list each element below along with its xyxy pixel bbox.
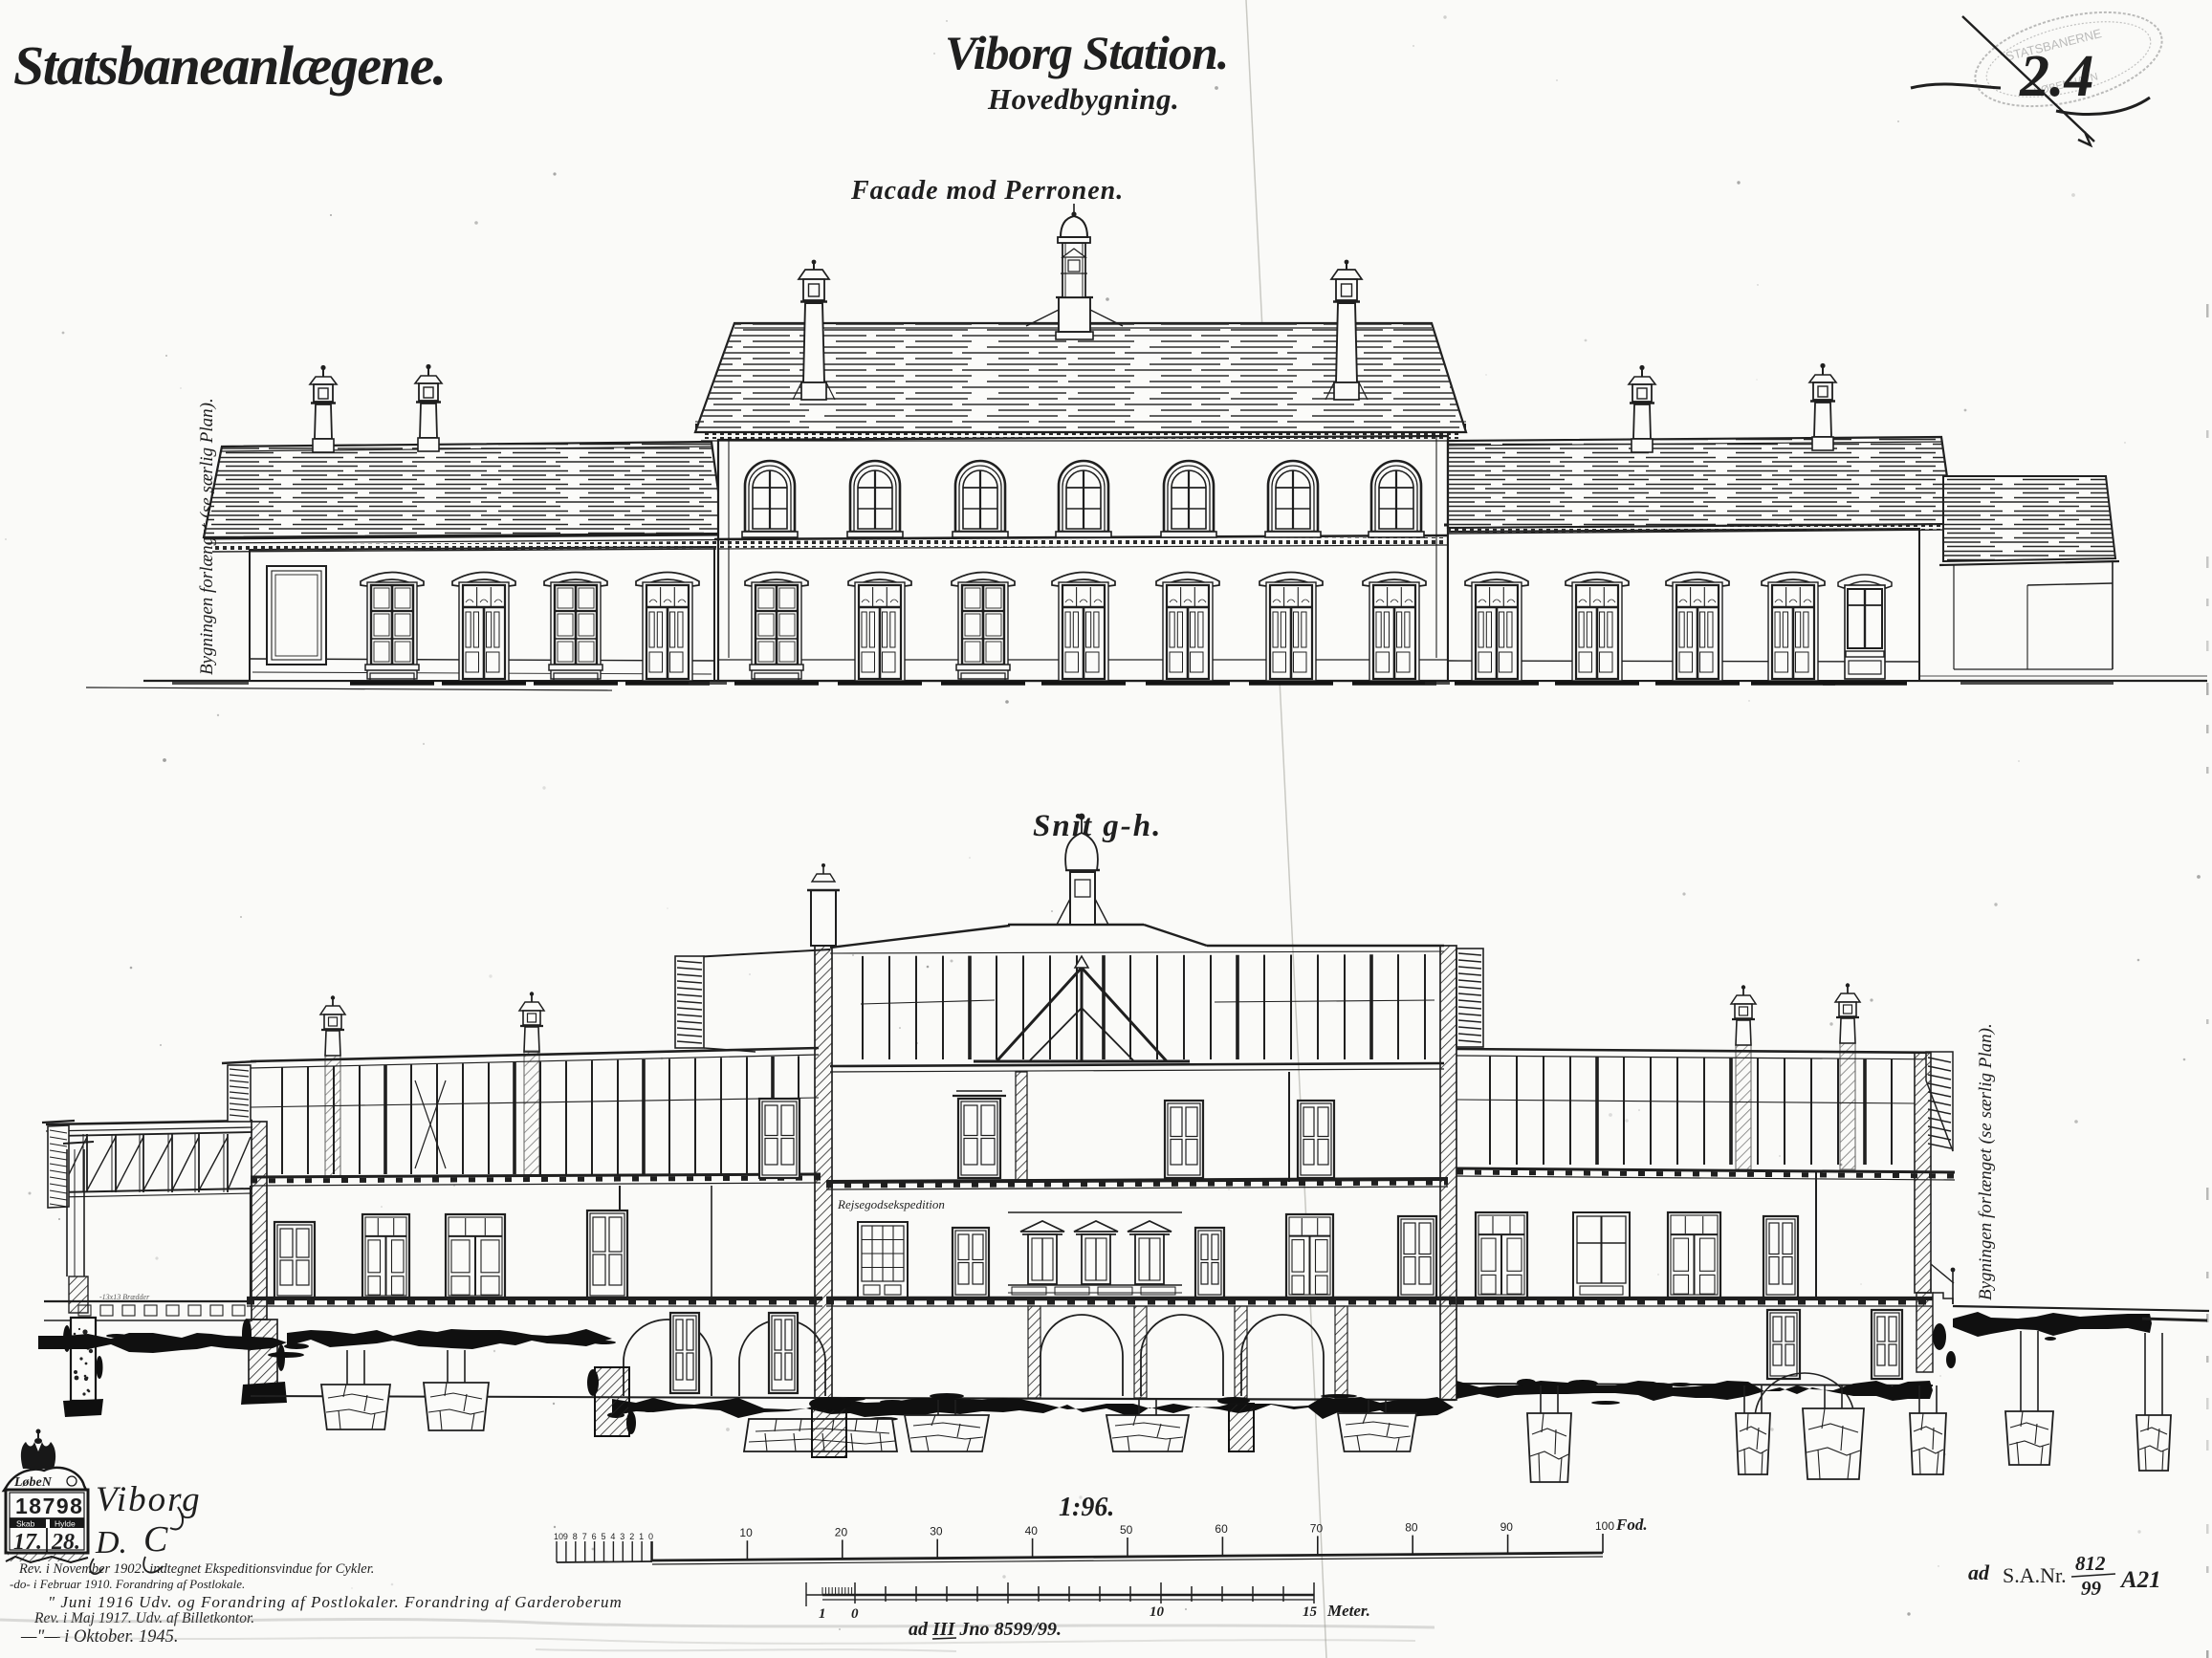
svg-text:Fod.: Fod.	[1615, 1516, 1648, 1534]
svg-text:Skab: Skab	[16, 1519, 35, 1529]
svg-text:812: 812	[2075, 1552, 2106, 1575]
svg-text:60: 60	[1215, 1522, 1228, 1536]
svg-text:10: 10	[739, 1526, 753, 1539]
svg-text:1:96.: 1:96.	[1059, 1493, 1114, 1522]
svg-text:1: 1	[819, 1606, 826, 1622]
svg-text:90: 90	[1500, 1520, 1514, 1534]
svg-text:8: 8	[573, 1532, 578, 1541]
svg-text:Hylde: Hylde	[55, 1519, 76, 1529]
svg-text:70: 70	[1310, 1521, 1324, 1535]
svg-text:0: 0	[851, 1606, 859, 1622]
svg-text:Snit g-h.: Snit g-h.	[1033, 809, 1162, 843]
svg-text:9: 9	[563, 1532, 568, 1541]
svg-text:Viborg: Viborg	[96, 1480, 202, 1519]
svg-text:99: 99	[2081, 1577, 2102, 1600]
svg-text:20: 20	[835, 1525, 848, 1538]
svg-text:ad: ad	[1968, 1560, 1990, 1584]
svg-text:28.: 28.	[51, 1530, 80, 1555]
svg-text:4: 4	[610, 1532, 615, 1541]
svg-text:0: 0	[648, 1532, 653, 1541]
svg-text:C: C	[143, 1519, 168, 1560]
svg-text:Bygningen forlænget (se særlig: Bygningen forlænget (se særlig Plan).	[1976, 1023, 1996, 1300]
svg-text:7: 7	[582, 1532, 587, 1541]
svg-text:3: 3	[620, 1532, 624, 1541]
svg-text:-13x13 Brædder: -13x13 Brædder	[99, 1293, 150, 1301]
svg-text:Rejsegodsekspedition: Rejsegodsekspedition	[837, 1197, 945, 1211]
svg-text:Statsbaneanlægene.: Statsbaneanlægene.	[13, 34, 446, 97]
svg-text:15: 15	[1303, 1604, 1318, 1620]
svg-text:Rev. i November 1902: indtegne: Rev. i November 1902: indtegnet Ekspedit…	[18, 1561, 374, 1577]
svg-text:17.: 17.	[13, 1530, 42, 1555]
svg-text:Meter.: Meter.	[1326, 1602, 1370, 1620]
svg-text:18798: 18798	[15, 1494, 83, 1518]
svg-text:Hovedbygning.: Hovedbygning.	[987, 82, 1179, 116]
svg-text:40: 40	[1025, 1524, 1039, 1538]
svg-text:2.4: 2.4	[2019, 44, 2094, 109]
svg-text:LøbeN: LøbeN	[13, 1475, 53, 1490]
svg-text:30: 30	[930, 1525, 943, 1538]
svg-text:Rev. i Maj 1917. Udv. af Bill: Rev. i Maj 1917. Udv. af Billetkontor.	[33, 1610, 254, 1626]
svg-text:6: 6	[592, 1532, 597, 1541]
svg-text:2: 2	[629, 1532, 634, 1541]
svg-text:" Juni 1916 Udv. og Forandri: " Juni 1916 Udv. og Forandring af Postlo…	[48, 1593, 623, 1611]
svg-text:S.A.Nr.: S.A.Nr.	[2003, 1563, 2067, 1587]
svg-text:—"— i Oktober. 1945.: —"— i Oktober. 1945.	[20, 1627, 179, 1647]
svg-text:1: 1	[639, 1532, 644, 1541]
svg-text:D.: D.	[95, 1525, 127, 1560]
svg-text:Facade mod Perronen.: Facade mod Perronen.	[850, 176, 1124, 206]
svg-text:100: 100	[1595, 1519, 1614, 1533]
svg-text:A21: A21	[2119, 1567, 2161, 1593]
svg-text:50: 50	[1120, 1523, 1133, 1537]
svg-text:80: 80	[1405, 1521, 1418, 1535]
svg-text:5: 5	[602, 1532, 606, 1541]
svg-text:10: 10	[554, 1532, 563, 1541]
svg-text:-do- i Februar 1910. Forandrin: -do- i Februar 1910. Forandring af Postl…	[10, 1577, 245, 1591]
svg-text:Viborg Station.: Viborg Station.	[945, 26, 1228, 79]
svg-text:ad III Jno 8599/99.: ad III Jno 8599/99.	[909, 1619, 1062, 1640]
svg-text:10: 10	[1150, 1604, 1165, 1620]
